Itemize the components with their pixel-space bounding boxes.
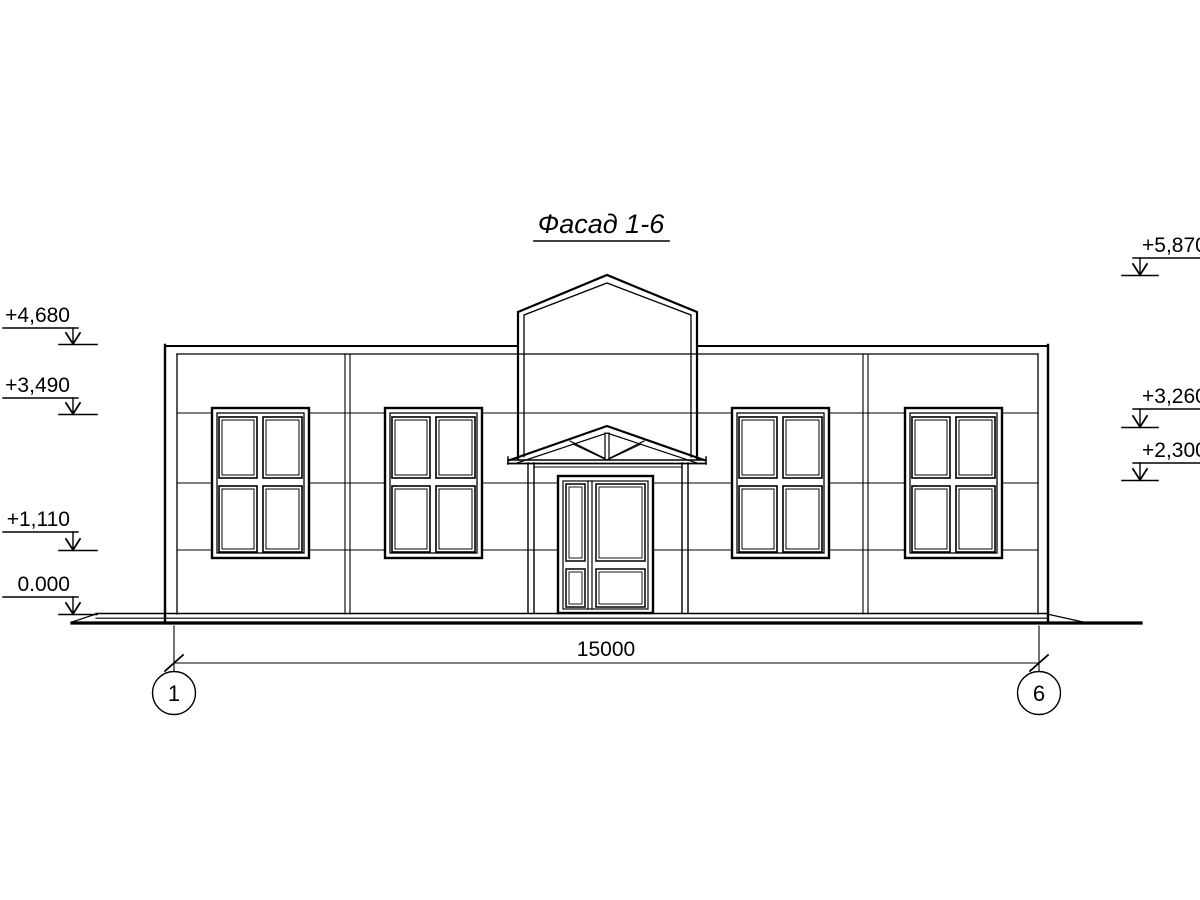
elevation-marker: +3,490 <box>3 374 97 415</box>
elevation-label: 0.000 <box>17 573 70 596</box>
window <box>732 408 829 558</box>
dimension-label: 15000 <box>577 638 635 661</box>
door-frame <box>558 476 653 613</box>
axis-label-1: 1 <box>168 681 180 706</box>
elevation-marker: +4,680 <box>3 304 97 345</box>
facade-drawing-sheet: 15000 1 6 +4,680 +3,490 +1,110 <box>0 0 1200 900</box>
elevation-marker: +1,110 <box>3 508 97 551</box>
elevation-label: +2,300 <box>1142 439 1200 462</box>
elevation-marker: 0.000 <box>3 573 97 615</box>
window <box>385 408 482 558</box>
axis-label-6: 6 <box>1033 681 1045 706</box>
elevation-marker: +2,300 <box>1122 439 1200 481</box>
elevation-label: +1,110 <box>7 508 70 531</box>
facade-elevation-drawing: 15000 1 6 +4,680 +3,490 +1,110 <box>0 0 1200 900</box>
dimension-and-axes: 15000 1 6 <box>153 626 1061 715</box>
elevation-label: +4,680 <box>5 304 70 327</box>
elevation-label: +3,260 <box>1142 385 1200 408</box>
entrance-door <box>528 463 688 613</box>
elevation-label: +3,490 <box>5 374 70 397</box>
page-title: Фасад 1-6 <box>538 209 665 239</box>
elevation-marker: +5,870 <box>1122 234 1200 276</box>
window <box>905 408 1002 558</box>
drawing-title: Фасад 1-6 <box>534 209 669 241</box>
window <box>212 408 309 558</box>
elevation-markers-right: +5,870 +3,260 +2,300 <box>1122 234 1200 481</box>
elevation-label: +5,870 <box>1142 234 1200 257</box>
elevation-marker: +3,260 <box>1122 385 1200 428</box>
elevation-markers-left: +4,680 +3,490 +1,110 0.000 <box>3 304 97 615</box>
